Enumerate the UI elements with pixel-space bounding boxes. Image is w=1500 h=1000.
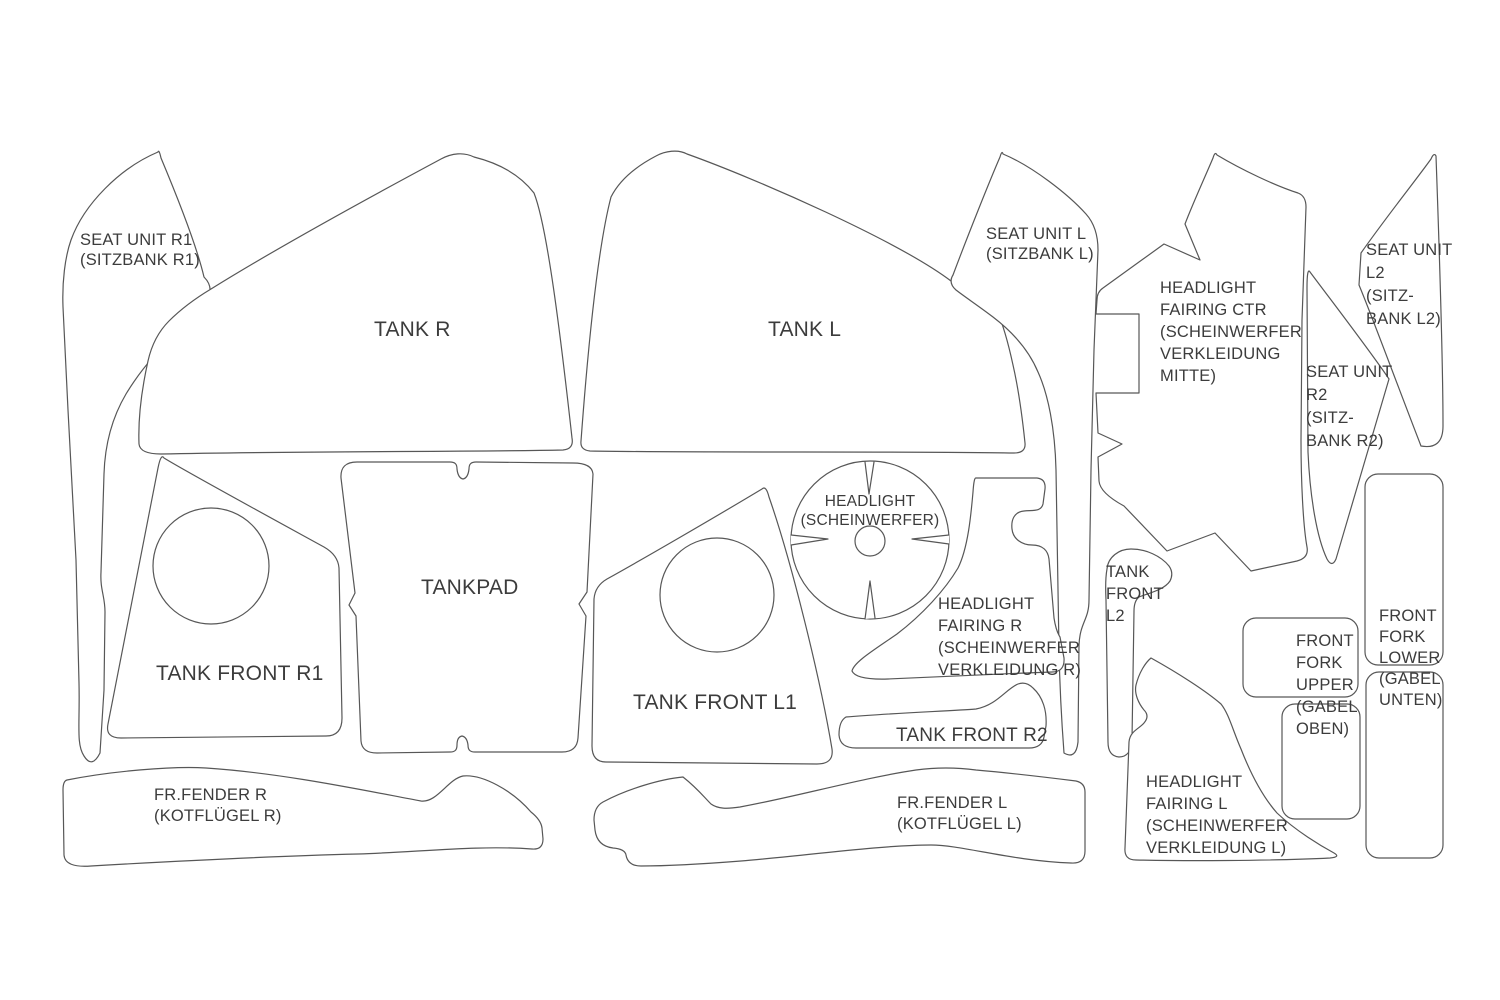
label-headlight: HEADLIGHT (SCHEINWERFER) <box>801 492 940 530</box>
tank-front-r1-hole <box>153 508 269 624</box>
pattern-sheet: SEAT UNIT R1 (SITZBANK R1) TANK R TANK L… <box>0 0 1500 1000</box>
label-fr-fender-l: FR.FENDER L (KOTFLÜGEL L) <box>897 793 1022 835</box>
label-seat-unit-r1: SEAT UNIT R1 (SITZBANK R1) <box>80 231 200 270</box>
label-headlight-fairing-l: HEADLIGHT FAIRING L (SCHEINWERFER VERKLE… <box>1146 771 1288 859</box>
label-seat-unit-l2: SEAT UNIT L2 (SITZ- BANK L2) <box>1366 239 1452 331</box>
label-tank-front-l2: TANK FRONT L2 <box>1106 561 1164 627</box>
label-tank-front-r1: TANK FRONT R1 <box>156 662 324 686</box>
label-tankpad: TANKPAD <box>421 576 518 600</box>
tank-l-outline <box>581 151 1025 453</box>
tank-front-l1-hole <box>660 538 774 652</box>
label-front-fork-lower: FRONT FORK LOWER (GABEL UNTEN) <box>1379 606 1443 711</box>
label-tank-front-r2: TANK FRONT R2 <box>896 725 1048 747</box>
label-tank-r: TANK R <box>374 318 451 342</box>
label-fr-fender-r: FR.FENDER R (KOTFLÜGEL R) <box>154 785 282 827</box>
label-tank-front-l1: TANK FRONT L1 <box>633 691 797 715</box>
label-headlight-fairing-ctr: HEADLIGHT FAIRING CTR (SCHEINWERFER VERK… <box>1160 277 1302 387</box>
headlight-center-hole <box>855 526 885 556</box>
label-tank-l: TANK L <box>768 318 841 342</box>
tankpad-outline <box>341 462 593 753</box>
label-seat-unit-r2: SEAT UNIT R2 (SITZ- BANK R2) <box>1306 361 1392 453</box>
tank-r-outline <box>139 154 572 454</box>
label-headlight-fairing-r: HEADLIGHT FAIRING R (SCHEINWERFER VERKLE… <box>938 593 1081 681</box>
label-front-fork-upper: FRONT FORK UPPER (GABEL OBEN) <box>1296 630 1358 740</box>
label-seat-unit-l: SEAT UNIT L (SITZBANK L) <box>986 225 1094 264</box>
fr-fender-r-outline <box>63 768 543 867</box>
